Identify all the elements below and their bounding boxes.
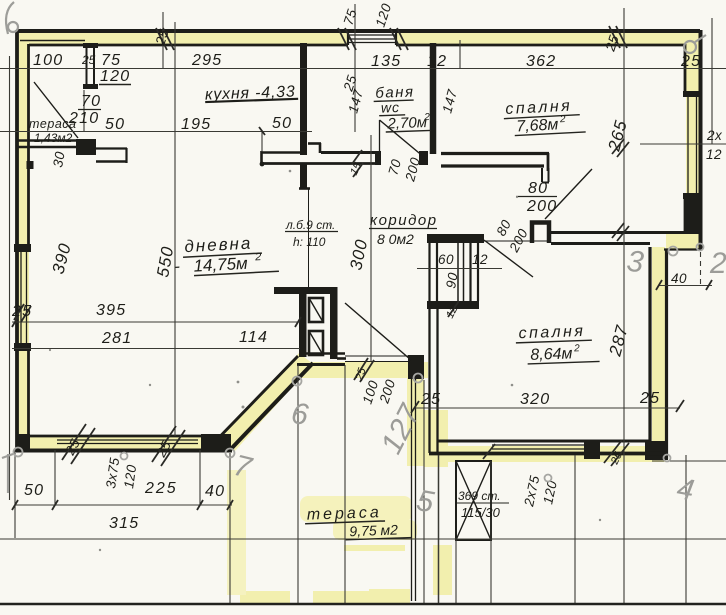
svg-text:wc: wc <box>381 99 401 116</box>
svg-text:114: 114 <box>239 329 268 346</box>
svg-text:25: 25 <box>420 391 441 408</box>
svg-text:2: 2 <box>423 112 430 123</box>
svg-text:80: 80 <box>528 180 548 197</box>
svg-text:25: 25 <box>639 390 660 407</box>
svg-text:195: 195 <box>181 116 211 133</box>
svg-text:281: 281 <box>101 330 132 347</box>
svg-text:1,43м2: 1,43м2 <box>34 131 73 145</box>
svg-text:50: 50 <box>24 482 44 499</box>
svg-text:100: 100 <box>33 52 63 69</box>
svg-text:120: 120 <box>100 68 130 85</box>
svg-text:70: 70 <box>81 93 101 110</box>
svg-text:135: 135 <box>371 53 401 70</box>
svg-text:спалня: спалня <box>518 323 585 342</box>
svg-text:2,70м: 2,70м <box>386 114 427 132</box>
svg-text:12: 12 <box>706 147 722 162</box>
svg-text:50: 50 <box>105 116 125 133</box>
svg-text:115/30: 115/30 <box>461 505 501 520</box>
svg-text:25: 25 <box>81 53 96 67</box>
svg-text:л.б.9 ст.: л.б.9 ст. <box>285 218 335 232</box>
svg-text:50: 50 <box>272 115 292 132</box>
svg-text:коридор: коридор <box>370 212 438 229</box>
svg-text:75: 75 <box>101 52 121 69</box>
svg-text:14,75м: 14,75м <box>193 254 248 276</box>
svg-text:369 ст.: 369 ст. <box>458 489 501 503</box>
svg-text:8 0м2: 8 0м2 <box>377 231 414 247</box>
svg-text:8,64м: 8,64м <box>530 345 573 363</box>
svg-text:2: 2 <box>559 114 567 125</box>
svg-text:40: 40 <box>205 483 225 500</box>
svg-text:225: 225 <box>144 480 178 497</box>
svg-text:295: 295 <box>191 52 222 69</box>
svg-text:дневна: дневна <box>184 234 253 257</box>
svg-text:9,75 м2: 9,75 м2 <box>349 522 398 540</box>
svg-text:2: 2 <box>573 343 580 354</box>
svg-text:7,68м: 7,68м <box>516 116 559 135</box>
svg-text:320: 320 <box>520 391 550 408</box>
svg-text:2: 2 <box>709 247 726 280</box>
svg-text:362: 362 <box>526 53 556 70</box>
svg-text:-: - <box>174 258 180 275</box>
svg-text:тераса: тераса <box>29 117 76 131</box>
svg-text:2x: 2x <box>706 128 723 143</box>
svg-text:40: 40 <box>671 271 687 286</box>
svg-text:2: 2 <box>254 251 262 263</box>
svg-text:12: 12 <box>472 252 488 267</box>
svg-text:30: 30 <box>50 150 68 168</box>
svg-text:25: 25 <box>11 303 32 320</box>
svg-text:60: 60 <box>438 252 454 267</box>
svg-text:12: 12 <box>427 53 447 70</box>
svg-text:200: 200 <box>526 198 557 215</box>
svg-text:90: 90 <box>443 271 461 289</box>
svg-text:395: 395 <box>96 302 126 319</box>
svg-text:h: 110: h: 110 <box>293 235 326 249</box>
svg-text:25: 25 <box>680 53 701 70</box>
svg-text:315: 315 <box>109 515 139 532</box>
